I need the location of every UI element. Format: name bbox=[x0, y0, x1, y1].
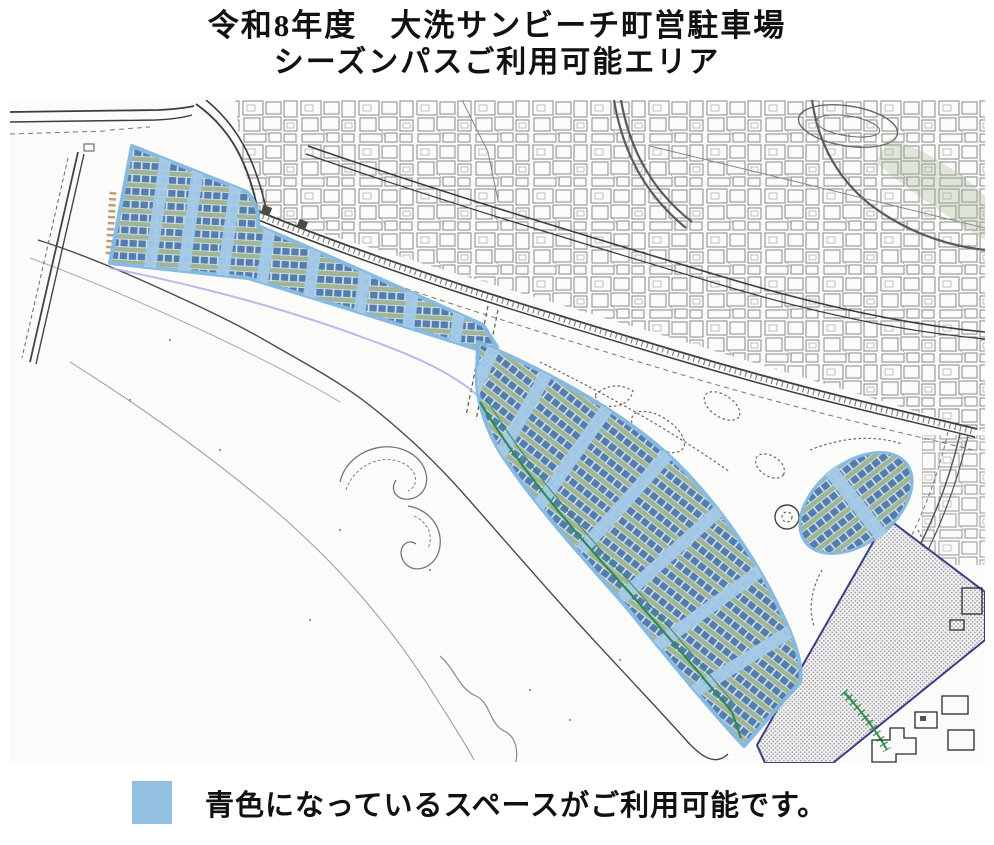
legend-swatch-svg bbox=[132, 781, 172, 824]
parking-map-svg bbox=[10, 100, 985, 763]
title-line-2: シーズンパスご利用可能エリア bbox=[0, 45, 994, 80]
page-title: 令和8年度 大洗サンビーチ町営駐車場 シーズンパスご利用可能エリア bbox=[0, 8, 994, 80]
parking-map bbox=[10, 100, 985, 763]
title-line-1: 令和8年度 大洗サンビーチ町営駐車場 bbox=[0, 8, 994, 45]
legend: 青色になっているスペースがご利用可能です。 bbox=[132, 781, 827, 824]
available-color-swatch bbox=[132, 781, 172, 824]
legend-text: 青色になっているスペースがご利用可能です。 bbox=[205, 782, 827, 824]
